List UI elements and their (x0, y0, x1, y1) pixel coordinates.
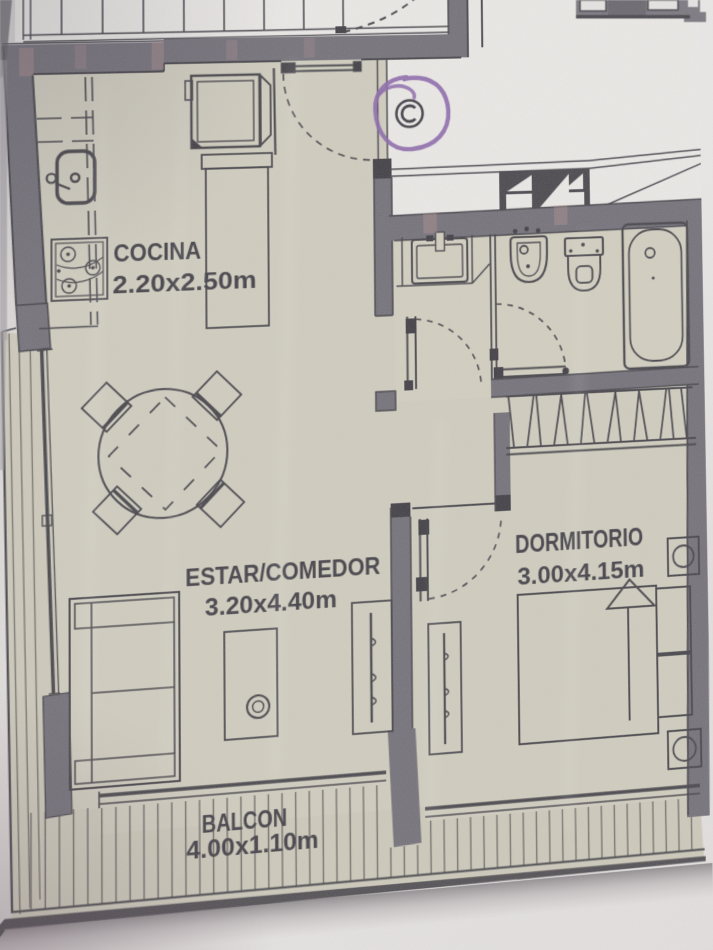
svg-text:COCINA: COCINA (113, 239, 201, 268)
